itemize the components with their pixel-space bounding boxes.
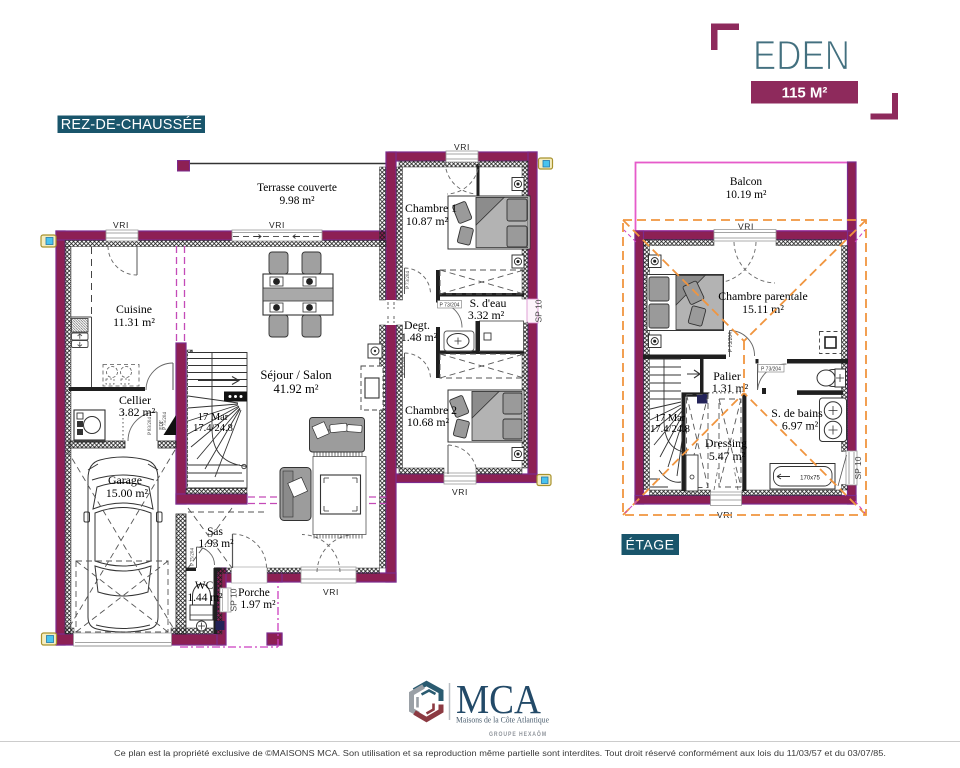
svg-text:Maisons de la Côte Atlantique: Maisons de la Côte Atlantique	[456, 716, 549, 725]
svg-text:Sas: Sas	[207, 526, 223, 538]
svg-text:17.4/24.8: 17.4/24.8	[650, 424, 690, 435]
svg-text:Ce plan est la propriété exclu: Ce plan est la propriété exclusive de ©M…	[114, 749, 886, 758]
svg-text:1.97 m²: 1.97 m²	[240, 599, 276, 611]
svg-text:Séjour / Salon: Séjour / Salon	[260, 368, 332, 382]
svg-text:3.32 m²: 3.32 m²	[468, 308, 505, 322]
svg-text:170x75: 170x75	[800, 476, 820, 482]
svg-text:P 73/204: P 73/204	[440, 303, 460, 309]
svg-text:Garage: Garage	[108, 473, 142, 487]
svg-text:10.87 m²: 10.87 m²	[406, 214, 449, 228]
svg-text:41.92 m²: 41.92 m²	[273, 382, 318, 396]
svg-text:SP 10: SP 10	[229, 588, 239, 611]
svg-text:WC: WC	[195, 580, 213, 592]
svg-text:REZ-DE-CHAUSSÉE: REZ-DE-CHAUSSÉE	[61, 116, 203, 133]
svg-text:9.98 m²: 9.98 m²	[279, 195, 315, 207]
svg-text:VRI: VRI	[113, 220, 129, 230]
svg-text:17 Mar: 17 Mar	[655, 413, 686, 424]
svg-text:VRI: VRI	[454, 142, 470, 152]
svg-text:17 Mar: 17 Mar	[198, 412, 229, 423]
svg-text:Porche: Porche	[238, 587, 270, 599]
svg-text:EDEN: EDEN	[753, 32, 850, 79]
svg-text:GROUPE HEXAŌM: GROUPE HEXAŌM	[489, 731, 547, 738]
svg-text:115 M²: 115 M²	[782, 85, 828, 102]
svg-text:Dressing: Dressing	[705, 436, 747, 450]
svg-text:1.48 m²: 1.48 m²	[401, 330, 438, 344]
svg-text:17.4/24.8: 17.4/24.8	[193, 423, 233, 434]
svg-text:P 73/204: P 73/204	[761, 367, 781, 373]
svg-text:15.11 m²: 15.11 m²	[742, 302, 784, 316]
svg-text:Terrasse couverte: Terrasse couverte	[257, 182, 337, 194]
svg-text:10.19 m²: 10.19 m²	[726, 189, 767, 201]
svg-text:11.31 m²: 11.31 m²	[113, 315, 155, 329]
svg-text:Balcon: Balcon	[730, 176, 763, 188]
svg-text:3.82 m²: 3.82 m²	[119, 405, 156, 419]
svg-text:P 75/204: P 75/204	[191, 548, 196, 566]
svg-text:1.93 m²: 1.93 m²	[198, 538, 234, 550]
svg-text:SP 10: SP 10	[534, 299, 544, 322]
svg-text:EDF: EDF	[160, 420, 165, 430]
svg-text:P 83/204: P 83/204	[148, 417, 153, 435]
svg-text:VRI: VRI	[452, 487, 468, 497]
svg-text:VRI: VRI	[738, 222, 754, 232]
svg-text:VRI: VRI	[269, 220, 285, 230]
svg-text:Cuisine: Cuisine	[116, 302, 152, 316]
svg-text:VRI: VRI	[323, 587, 339, 597]
svg-text:1.44 m²: 1.44 m²	[187, 592, 223, 604]
svg-text:SP 10: SP 10	[853, 456, 863, 479]
svg-text:ÉTAGE: ÉTAGE	[626, 537, 675, 553]
svg-text:P 73/204: P 73/204	[728, 332, 734, 352]
svg-text:P 75/204: P 75/204	[402, 357, 407, 375]
svg-text:Chambre 1: Chambre 1	[405, 201, 457, 215]
svg-text:5.47 m²: 5.47 m²	[709, 449, 746, 463]
svg-text:6.97 m²: 6.97 m²	[782, 419, 819, 433]
svg-text:10.68 m²: 10.68 m²	[407, 415, 450, 429]
svg-text:15.00 m²: 15.00 m²	[106, 486, 149, 500]
svg-text:P 73/204: P 73/204	[406, 271, 411, 289]
